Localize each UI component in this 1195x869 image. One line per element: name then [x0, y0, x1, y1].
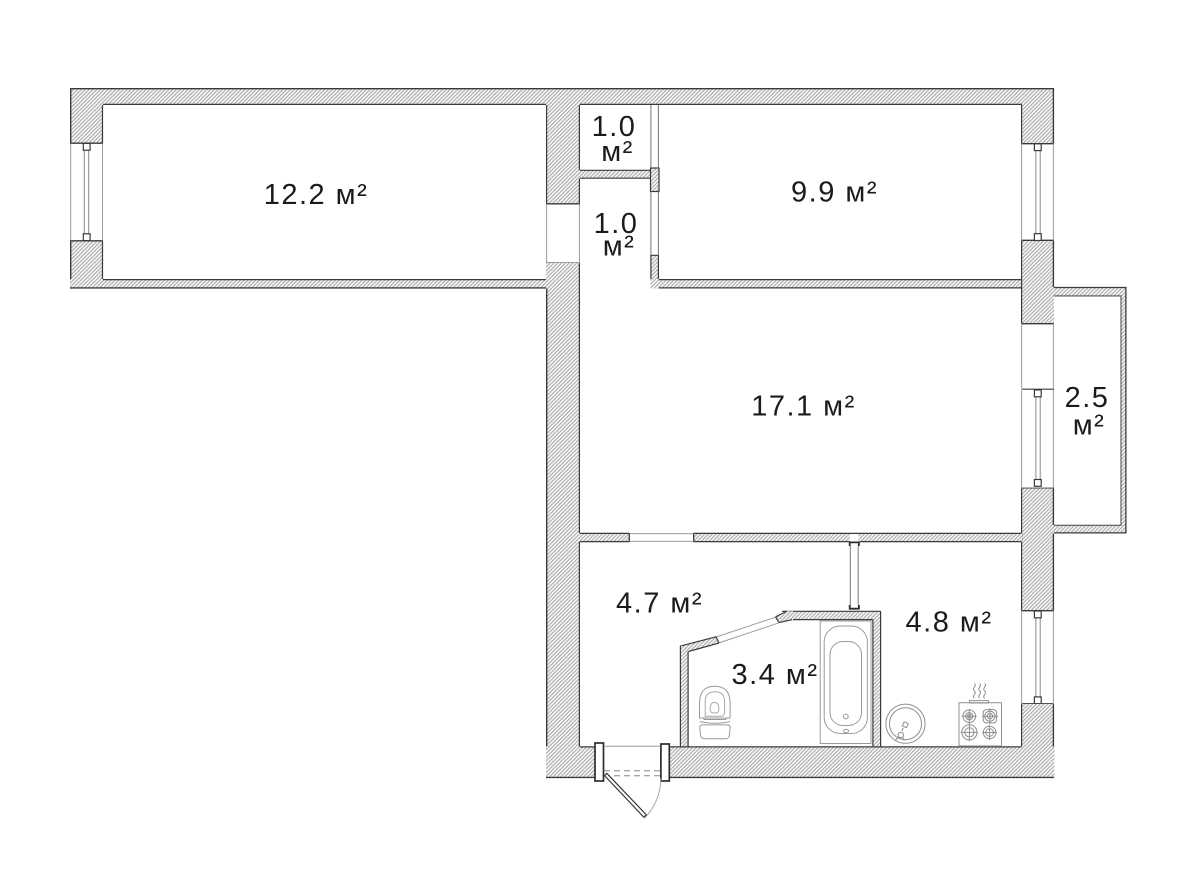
svg-text:3.4 м²: 3.4 м² — [732, 659, 819, 691]
svg-text:м²: м² — [603, 231, 636, 263]
svg-text:м²: м² — [601, 136, 634, 168]
svg-text:9.9 м²: 9.9 м² — [791, 177, 878, 209]
svg-text:12.2 м²: 12.2 м² — [264, 179, 369, 211]
svg-text:4.8 м²: 4.8 м² — [906, 607, 993, 639]
svg-text:17.1 м²: 17.1 м² — [751, 391, 856, 423]
svg-text:м²: м² — [1073, 410, 1106, 442]
svg-text:4.7 м²: 4.7 м² — [616, 588, 703, 620]
